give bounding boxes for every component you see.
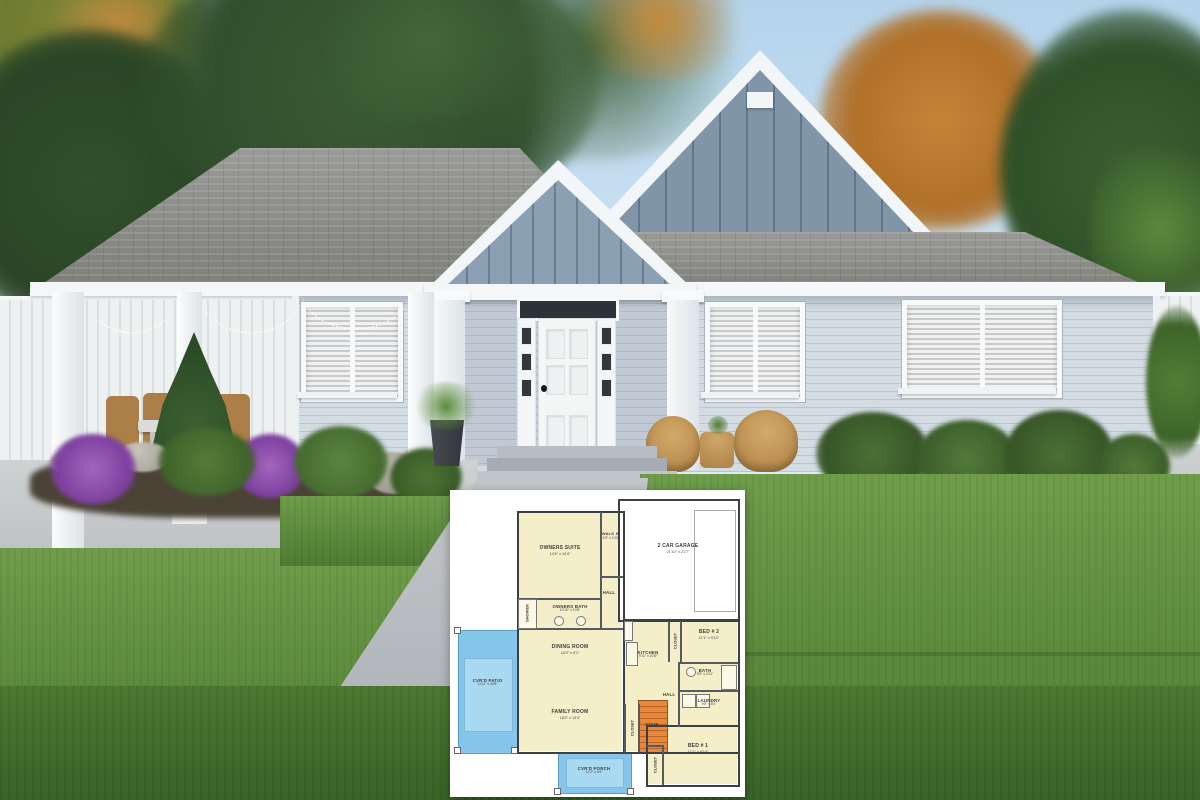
sidelight-pane: [601, 379, 612, 397]
corner-tall-shrub: [1146, 306, 1200, 458]
plan-label-covered-patio: CVR'D PATIO11'11" x 23'8": [461, 678, 514, 687]
door-panel: [546, 329, 565, 359]
plan-wall: [680, 621, 682, 662]
plan-label-bath: BATH9'9" x 4'11": [688, 668, 722, 677]
plan-label-bed2: BED # 211'1" x 9'10": [684, 630, 734, 640]
plan-wall: [678, 662, 738, 664]
porch-step-top: [497, 446, 657, 458]
plan-label-dining: DINING ROOM18'3" x 9'1": [530, 645, 610, 655]
plan-label-closet-bed2: CLOSET: [673, 633, 678, 649]
plan-label-closet-stair: CLOSET: [630, 720, 635, 736]
house-exterior-scene: OWNERS SUITE14'4" x 14'4" WALK IN4'9" x …: [0, 0, 1200, 800]
plan-porch-post: [554, 788, 561, 795]
porch-step-middle: [487, 458, 667, 471]
window-far-right-double: [902, 300, 1062, 398]
plan-wall: [638, 704, 640, 752]
plan-wall: [678, 690, 738, 692]
plan-label-family: FAMILY ROOM18'3" x 13'4": [530, 710, 610, 720]
window-mullion: [753, 307, 758, 397]
floor-plan-inset: OWNERS SUITE14'4" x 14'4" WALK IN4'9" x …: [450, 490, 745, 797]
plan-label-closet-bed1: CLOSET: [653, 757, 658, 773]
wicker-chair: [734, 410, 798, 472]
plan-wall: [668, 621, 670, 662]
table-plant: [708, 416, 728, 434]
purple-salvia-flowers: [50, 434, 136, 504]
plan-label-hall-lower: HALL: [654, 692, 684, 697]
sidelight-pane: [601, 327, 612, 345]
plan-wall: [624, 704, 626, 752]
window-right-of-door: [705, 302, 805, 402]
window-mullion: [980, 305, 985, 393]
plan-label-garage: 2 CAR GARAGE21'10" x 21'7": [636, 544, 720, 554]
gable-corbel: [747, 92, 773, 108]
door-panel: [546, 365, 565, 395]
door-sidelight-left: [517, 318, 536, 464]
patio-post-corner: [408, 292, 434, 474]
plan-label-stair: STAIR: [639, 723, 665, 728]
front-door: [538, 318, 596, 464]
plan-patio-post: [454, 747, 461, 754]
plan-bed1-block-walls: [646, 725, 740, 787]
plan-label-walk-in: WALK IN4'9" x 10'5": [594, 532, 628, 541]
plan-wall: [662, 745, 664, 785]
plan-label-owners-bath: OWNERS BATH10'10" x 10'8": [538, 604, 602, 613]
green-shrub: [294, 426, 388, 498]
window-sill-left: [297, 392, 397, 398]
plan-wall: [647, 745, 662, 747]
window-sill-far-right: [898, 388, 1056, 394]
plan-label-bed1: BED # 111'1" x 9'10": [672, 744, 724, 754]
plan-label-covered-porch: CVR'D PORCH12'2" x 5'4": [562, 766, 626, 775]
plan-label-laundry: LAUNDRY9'6" x 8'4": [682, 698, 736, 707]
plan-label-kitchen: KITCHEN9'11" x 16'8": [628, 650, 668, 659]
plan-owners-bath-sink: [576, 616, 586, 626]
plan-wall: [600, 576, 623, 578]
porch-side-table: [700, 432, 734, 468]
plan-porch-post: [627, 788, 634, 795]
plan-patio-post: [454, 627, 461, 634]
patio-post-left: [52, 292, 84, 564]
plan-kitchen-counter: [624, 621, 633, 641]
door-panel: [569, 365, 588, 395]
sidelight-pane: [521, 353, 532, 371]
sidelight-pane: [521, 327, 532, 345]
plan-label-shower: SHOWER: [525, 604, 530, 622]
window-sill-right: [701, 392, 799, 398]
door-panel: [569, 329, 588, 359]
planter-plant: [412, 382, 480, 430]
plan-owners-bath-sink: [554, 616, 564, 626]
plan-bath-tub: [721, 665, 737, 690]
door-handle: [541, 385, 547, 392]
plan-garage-walls: [618, 499, 740, 622]
plan-label-hall-upper: HALL: [596, 590, 622, 595]
sidelight-pane: [521, 379, 532, 397]
plan-covered-patio-inner: [464, 658, 513, 732]
sidelight-pane: [601, 353, 612, 371]
green-shrub: [158, 428, 256, 496]
plan-label-owners-suite: OWNERS SUITE14'4" x 14'4": [520, 546, 600, 556]
door-sidelight-right: [597, 318, 616, 464]
lawn-edge-line: [745, 652, 1200, 656]
